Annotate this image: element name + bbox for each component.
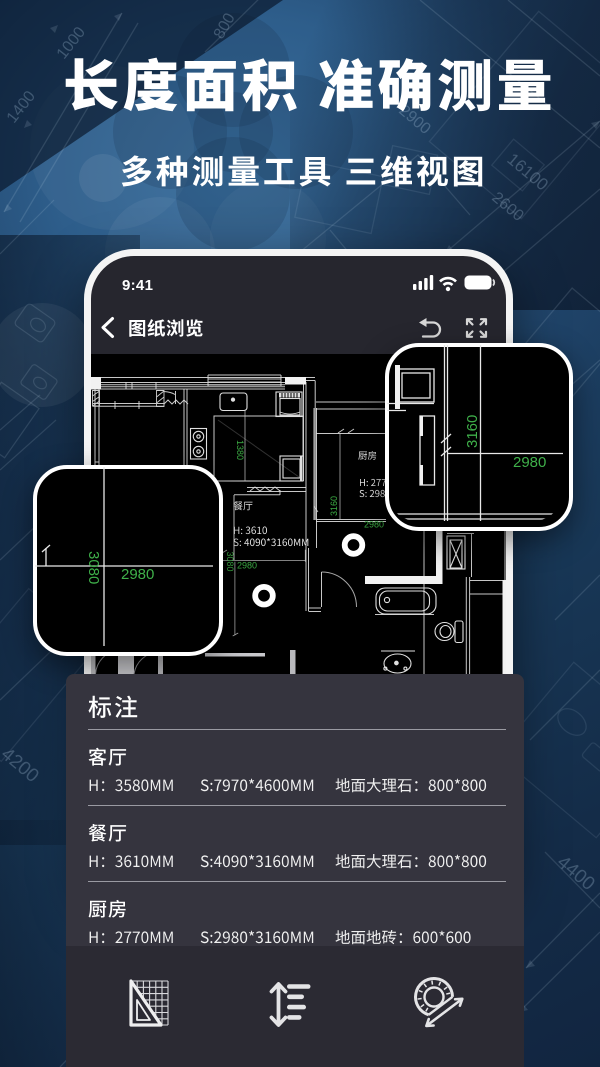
svg-text:1380: 1380 bbox=[235, 440, 245, 460]
svg-text:2980: 2980 bbox=[237, 561, 257, 571]
svg-text:3080: 3080 bbox=[85, 551, 102, 584]
svg-text:2980: 2980 bbox=[121, 566, 154, 583]
svg-text:4200: 4200 bbox=[0, 744, 43, 787]
svg-text:1400: 1400 bbox=[4, 88, 39, 127]
svg-text:3080: 3080 bbox=[225, 552, 235, 572]
svg-text:4400: 4400 bbox=[553, 852, 599, 895]
svg-text:2980: 2980 bbox=[513, 454, 546, 471]
svg-text:16100: 16100 bbox=[503, 150, 551, 195]
svg-text:3160: 3160 bbox=[329, 496, 339, 516]
svg-text:3160: 3160 bbox=[464, 415, 481, 448]
svg-text:2980: 2980 bbox=[364, 520, 384, 530]
